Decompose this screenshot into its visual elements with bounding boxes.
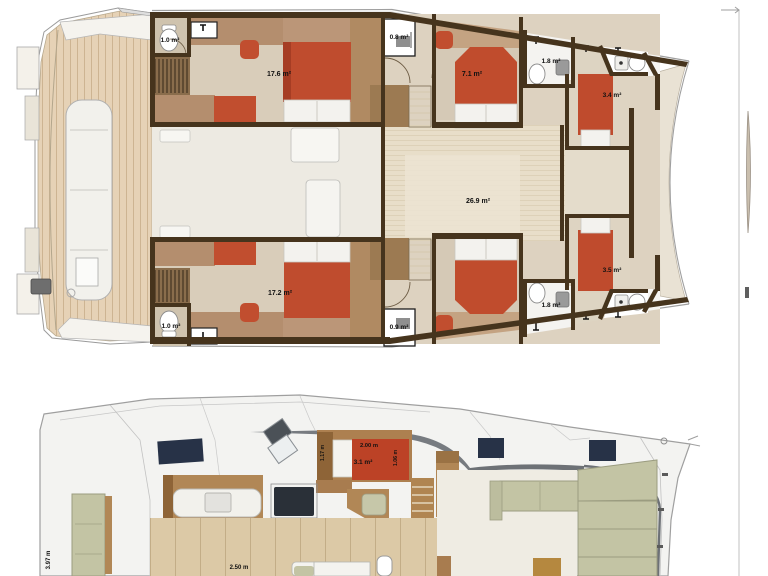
svg-text:1.06 m: 1.06 m [393,450,399,467]
svg-text:2.00 m: 2.00 m [360,443,378,449]
svg-text:1.8 m²: 1.8 m² [542,58,562,65]
svg-text:26.9 m²: 26.9 m² [466,198,491,205]
svg-text:3.97 m: 3.97 m [46,551,52,570]
svg-text:1.8 m²: 1.8 m² [542,302,562,309]
svg-text:3.5 m²: 3.5 m² [603,267,623,274]
svg-text:2.50 m: 2.50 m [230,565,249,571]
svg-text:0.8 m²: 0.8 m² [390,34,410,41]
svg-text:1.17 m: 1.17 m [320,445,326,462]
svg-text:17.6 m²: 17.6 m² [267,71,292,78]
svg-text:17.2 m²: 17.2 m² [268,290,293,297]
svg-text:1.0 m²: 1.0 m² [161,37,181,44]
svg-text:0.9 m²: 0.9 m² [390,324,410,331]
svg-text:3.1 m²: 3.1 m² [354,459,374,466]
svg-text:7.1 m²: 7.1 m² [462,71,483,78]
svg-text:1.0 m²: 1.0 m² [162,323,182,330]
svg-text:3.4 m²: 3.4 m² [603,92,623,99]
